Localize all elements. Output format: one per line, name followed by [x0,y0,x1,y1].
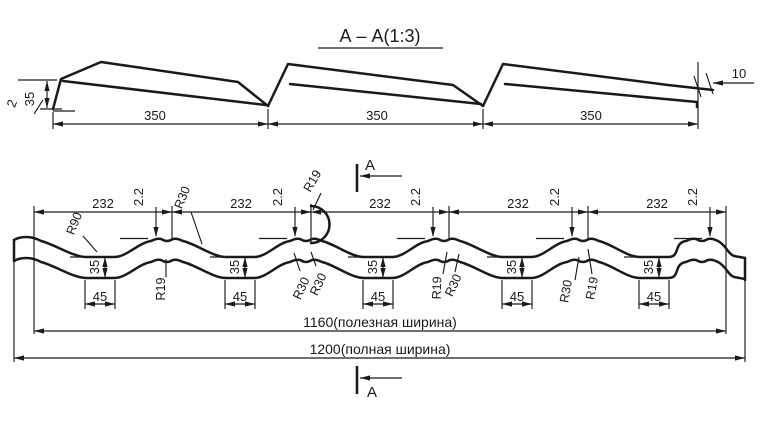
dim-232-4: 232 [507,196,529,211]
arrowhead [439,209,449,214]
dim-35-v4: 35 [504,260,519,274]
arrowhead [34,209,44,214]
dim-350-1: 350 [144,108,166,123]
leader-r30-c4 [455,254,459,272]
radius-label-r19-c5: R19 [583,276,601,301]
dim-232-2: 232 [230,196,252,211]
arrowhead [569,227,574,237]
arrowhead [519,257,524,267]
radius-label-r19-arc: R19 [301,168,325,195]
arrowhead [102,257,107,267]
arrowhead [242,268,247,278]
leader-r30-top [191,212,202,244]
arrowhead [483,121,493,126]
dim-350-2: 350 [366,108,388,123]
section-marker-top-label: А [365,157,375,174]
arrowhead [707,227,712,237]
dim-35-v1: 35 [87,260,102,274]
dim-2.2-3: 2.2 [408,188,423,206]
dim-45-v2: 45 [233,289,247,304]
module-lowline-3 [505,84,697,107]
radius-label-r19-c4: R19 [430,276,445,299]
module-lowline-1 [63,81,266,105]
arrowhead [578,209,588,214]
arrowhead [102,268,107,278]
arrowhead [713,80,723,85]
arrowhead [53,121,63,126]
radius-label-r90: R90 [64,210,86,237]
radius-label-r30-c4: R30 [442,272,464,299]
dim-2.2-2: 2.2 [270,188,285,206]
radius-label-r19-c1: R19 [154,277,168,300]
arrowhead [268,121,278,126]
arrowhead [588,209,598,214]
arrowhead [360,173,370,178]
dim-45-v3: 45 [371,289,385,304]
arrowhead [153,227,158,237]
dim-232-5: 232 [646,196,668,211]
arrowhead [292,227,297,237]
arrowhead [162,209,172,214]
dim-232-1: 232 [92,196,114,211]
dim-232-3: 232 [369,196,391,211]
section-title: А – А(1:3) [339,26,420,46]
technical-drawing: А – А(1:3) 350 350 350 35 2 10 232 232 2… [0,0,761,428]
dim-45-v4: 45 [510,289,524,304]
drawing-sheet: А – А(1:3) 350 350 350 35 2 10 232 232 2… [0,0,761,428]
dim-2.2-5: 2.2 [685,188,700,206]
dim-2-thickness: 2 [3,97,20,109]
arrowhead [430,227,435,237]
profile-top-line [14,237,745,258]
dim-350-3: 350 [580,108,602,123]
arrowhead [735,355,745,360]
radius-label-r30-top: R30 [172,184,194,211]
arrowhead [242,257,247,267]
arrowhead [380,268,385,278]
dim-45-v1: 45 [93,289,107,304]
dim-1160-useful-width: 1160(полезная ширина) [303,314,457,330]
dim-2.2-1: 2.2 [131,188,146,206]
arrowhead [656,268,661,278]
section-view [53,62,713,109]
arrowhead [519,268,524,278]
arrowhead [656,257,661,267]
arrowhead [34,328,44,333]
arrowhead [688,121,698,126]
radius-label-r30-c5: R30 [557,279,575,304]
dim-35-v3: 35 [365,260,380,274]
leader-r30-c2a [294,253,300,271]
dim-35-v2: 35 [227,260,242,274]
arrowhead [301,209,311,214]
arrowhead [311,209,321,214]
arrowhead [473,121,483,126]
view-title: А – А(1:3) [318,26,443,48]
section-marker-bottom-label: А [367,384,377,401]
arrowhead [44,81,49,91]
radius-label-r30-c2b: R30 [307,271,329,298]
arrowhead [716,209,726,214]
arrowhead [14,355,24,360]
dim-2.2-4: 2.2 [547,188,562,206]
arrowhead [360,375,370,380]
leader-r19-c5 [588,249,592,274]
dim-1200-full-width: 1200(полная ширина) [310,341,451,357]
arrowhead [449,209,459,214]
labels: 350 350 350 35 2 10 232 232 232 232 232 … [3,66,746,401]
dim-45-v5: 45 [647,289,661,304]
arrowhead [380,257,385,267]
leader-r90 [83,236,97,252]
dim-10-edge: 10 [732,66,746,81]
dim-35-step: 35 [22,92,37,106]
arrowhead [258,121,268,126]
arrowhead [44,98,49,108]
dim-35-v5: 35 [641,260,656,274]
arrowhead [716,328,726,333]
module-lowline-2 [290,84,481,104]
